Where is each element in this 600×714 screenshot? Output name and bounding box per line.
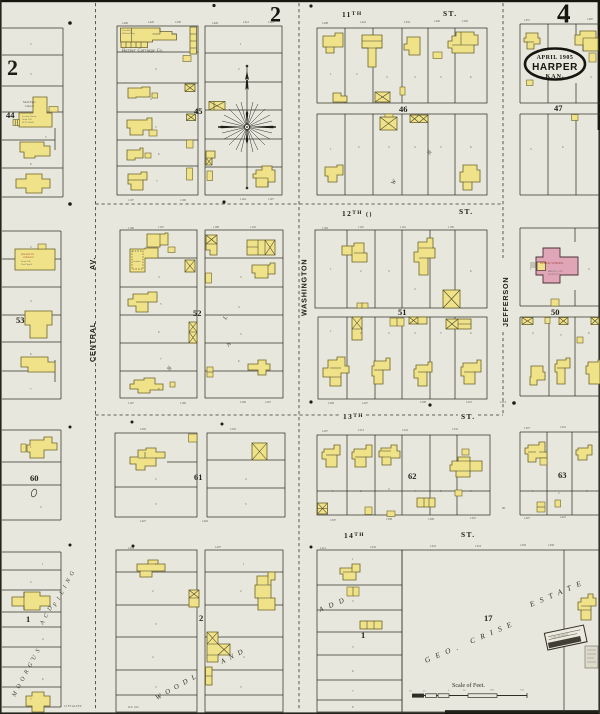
svg-text:CHURCH: CHURCH [23,256,34,259]
svg-text:1412: 1412 [243,20,250,24]
svg-text:1309: 1309 [428,517,435,521]
svg-text:HARPER: HARPER [532,62,578,73]
svg-text:4: 4 [557,0,571,29]
svg-text:Not Plast'd: Not Plast'd [21,263,33,266]
svg-text:1107: 1107 [128,401,134,405]
svg-text:1104: 1104 [322,226,328,230]
svg-text:Harper Carriage Co.: Harper Carriage Co. [121,47,163,52]
svg-text:1432: 1432 [370,545,377,549]
svg-text:62: 62 [408,471,417,481]
svg-text:53: 53 [16,315,25,325]
svg-text:2: 2 [7,55,18,80]
svg-text:1402: 1402 [202,519,209,523]
svg-text:1410: 1410 [560,515,567,519]
svg-text:ST.: ST. [461,530,476,539]
svg-text:PUBLIC SCHOOL: PUBLIC SCHOOL [540,261,564,265]
svg-text:1308: 1308 [386,517,393,521]
svg-text:1106: 1106 [128,226,134,230]
svg-text:1207: 1207 [322,429,329,433]
svg-text:O.T. 102: O.T. 102 [128,705,139,709]
svg-text:W.H. 20x60: W.H. 20x60 [22,121,35,124]
svg-text:1406: 1406 [122,21,129,25]
svg-text:ST.: ST. [459,207,474,216]
svg-text:1206: 1206 [328,401,335,405]
svg-text:1107: 1107 [268,197,274,201]
svg-text:44: 44 [6,110,15,120]
svg-text:1107: 1107 [128,198,134,202]
svg-text:1203: 1203 [230,427,237,431]
svg-text:ST.: ST. [461,412,476,421]
svg-text:12 FT ALLEY: 12 FT ALLEY [64,704,82,708]
svg-text:1208: 1208 [420,400,427,404]
svg-text:1432: 1432 [404,20,411,24]
svg-text:61: 61 [194,472,203,482]
svg-text:1430: 1430 [175,20,182,24]
svg-text:1450: 1450 [462,19,469,23]
svg-text:1452: 1452 [430,544,437,548]
svg-text:1310: 1310 [560,425,567,429]
svg-text:1307: 1307 [524,426,531,430]
svg-text:Lumber: Lumber [133,260,141,263]
svg-text:1412: 1412 [320,546,327,550]
svg-text:ST.: ST. [443,9,458,18]
svg-text:1207: 1207 [362,401,369,405]
svg-text:46: 46 [399,104,408,114]
svg-text:1: 1 [361,630,365,640]
svg-text:1307: 1307 [330,518,337,522]
svg-text:63: 63 [558,470,567,480]
svg-text:AV.: AV. [88,257,97,270]
svg-text:1108: 1108 [213,225,219,229]
svg-text:1406: 1406 [212,21,219,25]
svg-text:Church: Church [25,104,34,108]
svg-text:APRIL 1905: APRIL 1905 [537,55,574,61]
svg-text:1456: 1456 [520,543,527,547]
svg-text:1110: 1110 [358,225,364,229]
svg-text:1118: 1118 [250,225,256,229]
svg-text:&WoodWkg: &WoodWkg [122,32,135,35]
svg-text:1232: 1232 [452,427,459,431]
svg-text:1422: 1422 [360,20,367,24]
svg-text:47: 47 [554,103,563,113]
svg-text:60': 60' [502,506,506,510]
svg-text:2: 2 [199,613,203,623]
svg-text:1122: 1122 [400,225,406,229]
svg-text:1144: 1144 [240,197,246,201]
svg-text:1407: 1407 [524,516,531,520]
svg-text:1100: 1100 [180,198,186,202]
svg-text:1422: 1422 [268,20,275,24]
svg-text:60: 60 [30,473,39,483]
svg-text:1420: 1420 [148,20,155,24]
svg-text:1404: 1404 [128,546,135,550]
svg-text:1212: 1212 [358,428,365,432]
svg-text:NO HEAT'G: NO HEAT'G [548,273,561,276]
svg-text:1222: 1222 [402,428,409,432]
svg-text:1107: 1107 [158,225,164,229]
svg-text:1407: 1407 [140,519,147,523]
svg-text:1100: 1100 [180,401,186,405]
svg-text:1407: 1407 [215,545,222,549]
svg-text:1210: 1210 [466,400,473,404]
svg-text:1487: 1487 [587,17,594,21]
svg-text:WASHINGTON: WASHINGTON [300,259,309,316]
svg-text:1310: 1310 [470,516,477,520]
svg-text:JEFFERSON: JEFFERSON [501,277,510,327]
svg-text:1440: 1440 [434,19,441,23]
svg-text:17: 17 [484,613,493,623]
svg-text:Scale of Feet.: Scale of Feet. [452,682,485,689]
svg-text:1202: 1202 [140,427,147,431]
svg-text:1200: 1200 [240,400,247,404]
svg-text:1454: 1454 [475,544,482,548]
svg-text:1467: 1467 [560,17,567,21]
svg-text:52: 52 [193,308,202,318]
svg-text:50: 50 [551,307,560,317]
svg-text:51: 51 [398,307,407,317]
svg-text:1130: 1130 [448,225,454,229]
svg-text:1212: 1212 [500,400,507,404]
svg-text:1408: 1408 [322,21,329,25]
svg-text:1457: 1457 [524,18,531,22]
svg-text:1458: 1458 [548,543,555,547]
svg-text:1207: 1207 [265,400,272,404]
svg-text:1: 1 [26,614,30,624]
svg-text:CENTRAL: CENTRAL [88,322,97,362]
